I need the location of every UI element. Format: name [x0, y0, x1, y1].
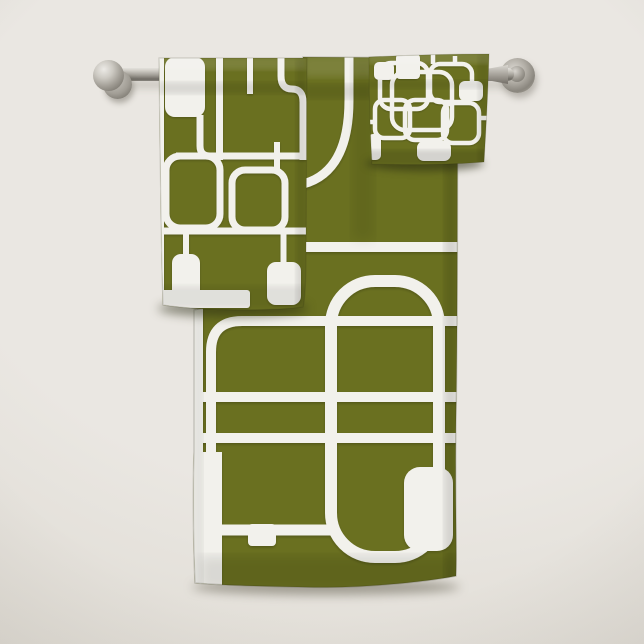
- bathroom-towel-set-photo: [0, 0, 644, 644]
- washcloth: [0, 0, 644, 644]
